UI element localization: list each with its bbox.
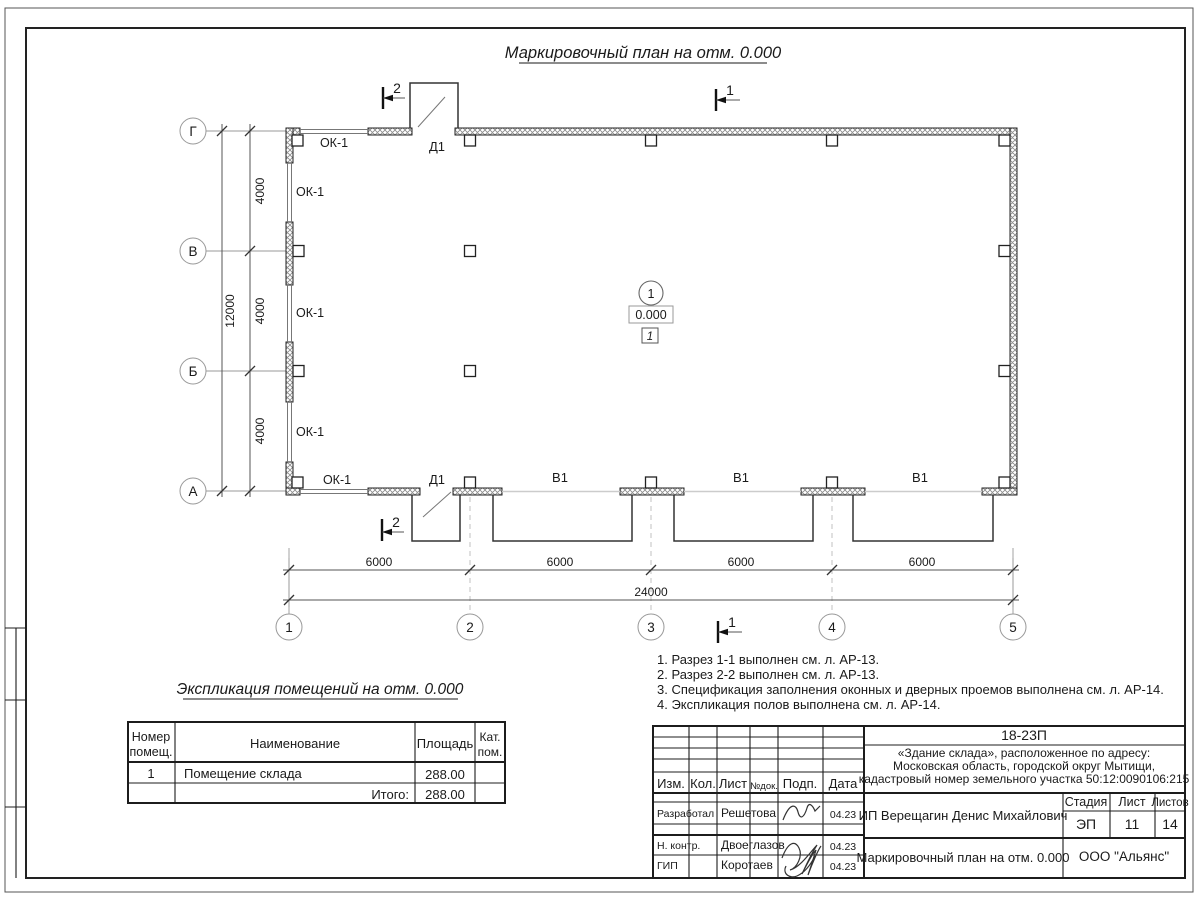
col-doc: №док. [750,781,778,792]
note-item: 3. Спецификация заполнения оконных и две… [657,682,1164,697]
note-item: 1. Разрез 1-1 выполнен см. л. АР-13. [657,652,879,667]
col-header-number: Номер [132,730,171,744]
role: ГИП [657,860,678,872]
room-number: 1 [648,287,655,301]
col-header-area: Площадь [417,736,474,751]
explication-title: Экспликация помещений на отм. 0.000 [177,681,464,698]
col-header-cat: Кат. [480,730,501,744]
gate-mark-label: В1 [733,470,749,485]
col-data: Дата [829,776,859,791]
axis-circles-numbers: 1 2 3 4 5 [276,614,1026,640]
staff-row-razrabotal: Разработал Решетова 04.23 [657,806,856,821]
object-address-line2: Московская область, городской округ Мыти… [893,759,1155,773]
company-name: ООО "Альянс" [1079,849,1169,864]
col-podp: Подп. [783,776,818,791]
stage-value: ЭП [1076,816,1096,832]
vestibule-top [410,83,458,128]
object-address-line3: кадастровый номер земельного участка 50:… [859,772,1190,786]
section-number: 1 [728,614,736,630]
dim-left-4000-1: 4000 [253,177,267,204]
col-izm: Изм. [657,776,685,791]
room-elevation: 0.000 [635,308,666,322]
sheets-value: 14 [1162,816,1178,832]
date: 04.23 [830,809,856,821]
section-number: 2 [393,80,401,96]
name: Коротаев [721,858,773,872]
table-row: 1 Помещение склада 288.00 [147,766,465,782]
signature-razrabotal [783,805,820,820]
name: Двоеглазов [721,838,785,852]
section-mark-2-top: 2 [383,80,405,109]
sheet-title: Маркировочный план на отм. 0.000 [857,850,1070,865]
window-mark-label: ОК-1 [296,185,324,199]
gate-aprons [493,495,993,541]
dim-bottom-6000-1: 6000 [366,555,393,569]
window-mark-label: ОК-1 [320,136,348,150]
axis-number-1: 1 [285,620,293,635]
room-area-cell: 288.00 [425,767,465,782]
title-block: Изм. Кол. Лист №док. Подп. Дата Разработ… [653,726,1190,878]
drawing-canvas: Маркировочный план на отм. 0.000 4000 [0,0,1200,900]
window-mark-label: ОК-1 [296,306,324,320]
interior-column [465,366,476,377]
explication-table: Номер помещ. Наименование Площадь Кат. п… [128,722,505,803]
name: Решетова [721,806,776,820]
role: Разработал [657,808,714,820]
staff-row-gip: ГИП Коротаев 04.23 [657,858,856,873]
room-marker: 1 0.000 1 [629,281,673,343]
dim-bottom-6000-3: 6000 [728,555,755,569]
room-name-cell: Помещение склада [184,766,303,781]
dimension-chain-left: 4000 4000 4000 12000 [217,124,267,497]
dim-left-total-12000: 12000 [223,294,237,328]
axis-letter-b: Б [189,364,198,379]
frame-left-margin-boxes [5,628,26,878]
section-mark-2-bottom: 2 [382,514,404,541]
axis-number-2: 2 [466,620,474,635]
notes-list: 1. Разрез 1-1 выполнен см. л. АР-13. 2. … [657,652,1164,712]
sheets-label: Листов [1151,797,1188,809]
dim-bottom-total-24000: 24000 [634,585,668,599]
section-mark-1-bottom: 1 [718,614,742,643]
col-header-cat: пом. [478,745,503,759]
staff-row-ncontr: Н. контр. Двоеглазов 04.23 [657,838,856,853]
floor-type-mark: 1 [647,331,653,343]
window-mark-label: ОК-1 [296,425,324,439]
role: Н. контр. [657,840,700,852]
date: 04.23 [830,841,856,853]
axis-number-4: 4 [828,620,836,635]
signature-ncontr-gip [782,843,821,875]
door-leaf-bottom [423,492,451,517]
note-item: 4. Экспликация полов выполнена см. л. АР… [657,697,941,712]
opening-labels: ОК-1 ОК-1 ОК-1 ОК-1 ОК-1 Д1 Д1 В1 В1 В1 [296,136,928,487]
axis-circles-letters: Г В Б А [180,118,206,504]
drawing-sheet: Маркировочный план на отм. 0.000 4000 [0,0,1200,900]
col-header-number: помещ. [129,745,172,759]
section-number: 1 [726,82,734,98]
dim-bottom-6000-4: 6000 [909,555,936,569]
door-mark-label: Д1 [429,139,445,154]
client-name: ИП Верещагин Денис Михайлович [859,808,1068,823]
gate-mark-label: В1 [912,470,928,485]
date: 04.23 [830,861,856,873]
interior-column [465,246,476,257]
stage-label: Стадия [1065,795,1108,809]
col-header-name: Наименование [250,736,340,751]
section-number: 2 [392,514,400,530]
explication-section: Экспликация помещений на отм. 0.000 Номе… [128,681,505,803]
porch-door-bottom [412,495,460,541]
sheet-value: 11 [1125,816,1140,832]
dim-left-4000-2: 4000 [253,297,267,324]
door-leaf-top [418,97,445,127]
total-label: Итого: [371,787,409,802]
axis-letter-v: В [188,244,197,259]
axis-letter-a: А [188,484,197,499]
axis-number-3: 3 [647,620,655,635]
section-mark-1-top: 1 [716,82,740,111]
total-area: 288.00 [425,787,465,802]
col-list: Лист [719,776,747,791]
room-number-cell: 1 [147,766,154,781]
gate-mark-label: В1 [552,470,568,485]
doc-number: 18-23П [1001,727,1047,743]
window-mark-label: ОК-1 [323,473,351,487]
plan-title: Маркировочный план на отм. 0.000 [505,44,782,62]
note-item: 2. Разрез 2-2 выполнен см. л. АР-13. [657,667,879,682]
axis-number-5: 5 [1009,620,1017,635]
axis-letter-g: Г [189,124,197,139]
door-mark-label: Д1 [429,472,445,487]
dim-left-4000-3: 4000 [253,417,267,444]
object-address-line1: «Здание склада», расположенное по адресу… [898,746,1150,760]
floor-plan: 4000 4000 4000 12000 6000 6000 6000 6000… [180,80,1026,643]
dim-bottom-6000-2: 6000 [547,555,574,569]
col-kol: Кол. [690,776,716,791]
sheet-label: Лист [1118,795,1145,809]
table-total-row: Итого: 288.00 [371,787,465,802]
